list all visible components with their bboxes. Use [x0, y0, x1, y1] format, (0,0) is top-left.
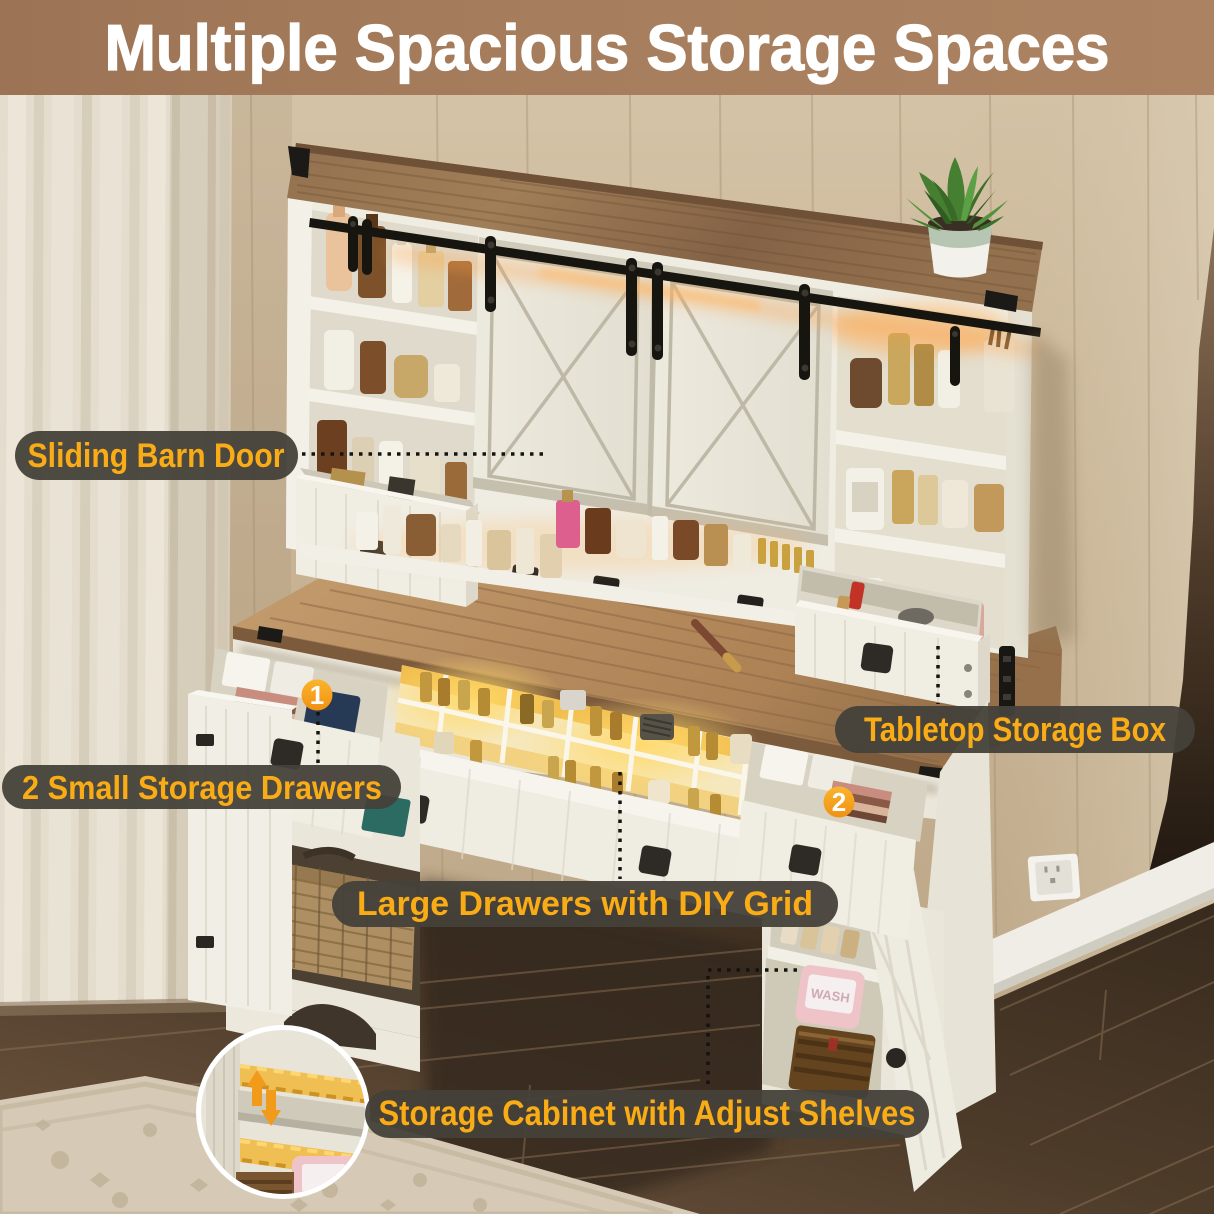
svg-text:Storage Cabinet with Adjust Sh: Storage Cabinet with Adjust Shelves: [379, 1094, 916, 1133]
svg-text:1: 1: [310, 680, 324, 710]
svg-text:Large Drawers with DIY Grid: Large Drawers with DIY Grid: [357, 885, 813, 923]
svg-text:Tabletop Storage Box: Tabletop Storage Box: [864, 711, 1166, 749]
svg-text:Multiple Spacious Storage Spac: Multiple Spacious Storage Spaces: [105, 11, 1110, 84]
svg-text:2 Small Storage Drawers: 2 Small Storage Drawers: [22, 769, 382, 806]
svg-text:2: 2: [832, 787, 846, 817]
svg-text:Sliding Barn Door: Sliding Barn Door: [28, 437, 285, 475]
